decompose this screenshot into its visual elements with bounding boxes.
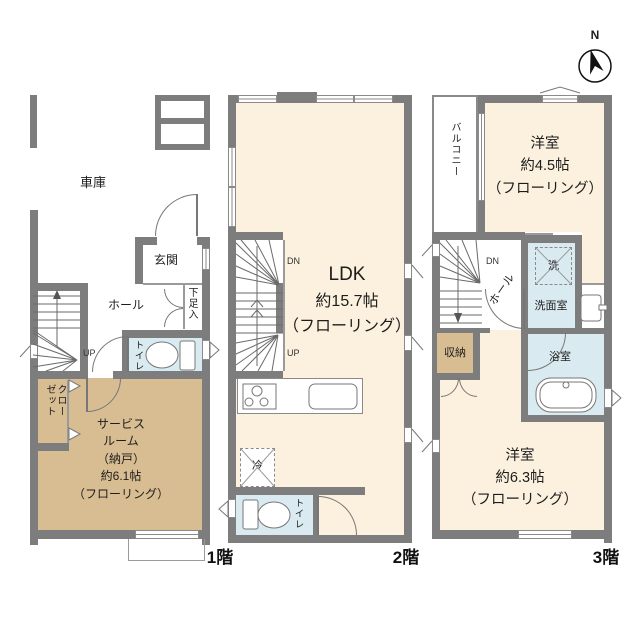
closet-door-markers	[69, 380, 80, 440]
toilet-fixture-1f	[146, 341, 195, 370]
fixtures-overlay	[0, 0, 640, 640]
stairs-1f	[33, 292, 80, 371]
fridge-x	[241, 449, 274, 486]
swing-markers	[20, 87, 621, 517]
bathtub-icon	[536, 378, 596, 412]
sink-icon	[309, 384, 357, 409]
compass-icon	[579, 48, 611, 82]
stairs-2f	[236, 240, 283, 371]
toilet-fixture-2f	[243, 500, 290, 529]
washer-x	[536, 248, 571, 284]
stairs-arrow-down-3f	[454, 313, 462, 323]
washbasin-icon	[581, 295, 607, 321]
stove-icon	[243, 384, 276, 409]
floorplan-canvas: 車庫 玄関 ホール 下足入 UP トイレ クローゼット サービス ルーム （納戸…	[0, 0, 640, 640]
stairs-arrow-up-1f	[53, 290, 61, 299]
stairs-3f	[440, 240, 482, 323]
